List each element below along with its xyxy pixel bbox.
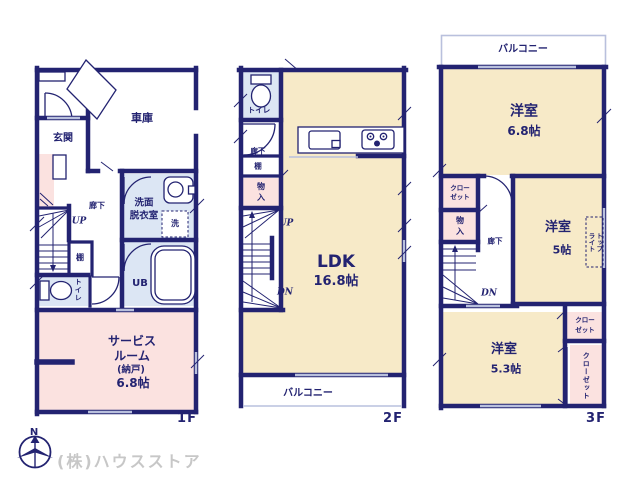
washroom-label: 洗面	[134, 197, 153, 208]
bathtub-icon	[151, 246, 195, 304]
room3-size: 5.3帖	[491, 362, 522, 375]
storage-label: 入	[257, 193, 265, 203]
toilet-label: トイレ	[248, 106, 271, 115]
entrance-label: 玄関	[53, 133, 73, 145]
floorplan-canvas: 車庫 玄関 廊下 UP 棚 トイレ 洗面 脱衣室 洗 UB サービス ルーム (…	[0, 0, 640, 480]
room3-area	[443, 312, 563, 406]
room3-label: 洋室	[491, 342, 517, 358]
door-mark	[101, 162, 113, 171]
door-leaf	[53, 155, 66, 179]
service-room-label: サービス	[108, 334, 156, 348]
ldk-label: LDK	[317, 252, 355, 272]
compass-north-label: N	[30, 427, 38, 439]
storage-label: 入	[456, 227, 464, 237]
room1-area	[443, 69, 604, 175]
service-room-label: (納戸)	[117, 364, 145, 375]
shelf-label: 棚	[76, 253, 84, 263]
shelf-label: 棚	[254, 162, 262, 171]
stove-icon	[362, 130, 394, 149]
hallway-label: 廊下	[488, 237, 503, 246]
compass-icon	[17, 436, 53, 468]
stairs-down-label: DN	[481, 289, 497, 300]
washroom-label: 脱衣室	[130, 210, 159, 221]
floor1-label: 1F	[177, 411, 197, 427]
washer-label: 洗	[171, 219, 179, 229]
storage-label: 物	[257, 182, 265, 192]
floor3-label: 3F	[586, 411, 606, 427]
closet-label: ゼット	[450, 194, 470, 202]
closet-label: クロー	[575, 317, 595, 325]
door-arc	[484, 176, 512, 204]
balcony-label: バルコニー	[498, 44, 548, 56]
skylight-label: トップ ライト	[586, 232, 602, 252]
stairs-icon	[243, 210, 281, 308]
floorplan-drawing	[0, 0, 640, 480]
bath-label: UB	[132, 278, 148, 290]
room2-size: 5帖	[553, 243, 572, 256]
closet-label: ゼット	[575, 327, 595, 335]
closet-label: クロー	[450, 185, 470, 193]
stairs-down-label: DN	[277, 288, 293, 299]
hallway-label: 廊下	[251, 147, 266, 156]
service-room-label: ルーム	[114, 349, 150, 363]
company-watermark: (株)ハウスストア	[57, 448, 202, 472]
room1-size: 6.8帖	[507, 124, 540, 138]
stairs-up-label: UP	[72, 217, 87, 228]
ldk-size: 16.8帖	[313, 274, 358, 290]
service-room-size: 6.8帖	[116, 376, 149, 390]
storage-label: 物	[456, 216, 464, 226]
door-arc	[92, 277, 119, 304]
hallway-label: 廊下	[89, 201, 105, 211]
room2-label: 洋室	[545, 220, 571, 236]
toilet-icon	[251, 75, 271, 107]
stairs-icon	[39, 210, 69, 272]
garage-label: 車庫	[131, 111, 153, 124]
stairs-icon	[443, 245, 478, 304]
porch-step	[39, 72, 65, 81]
stairs-up-label: UP	[279, 219, 294, 230]
basin-icon	[164, 177, 195, 203]
sink-icon	[309, 131, 340, 149]
balcony-label: バルコニー	[283, 388, 333, 400]
toilet-icon	[40, 281, 72, 300]
toilet-label: トイレ	[74, 278, 82, 302]
closet-label: クローゼット	[582, 352, 590, 400]
floor2-label: 2F	[383, 411, 403, 427]
room1-label: 洋室	[510, 104, 538, 121]
